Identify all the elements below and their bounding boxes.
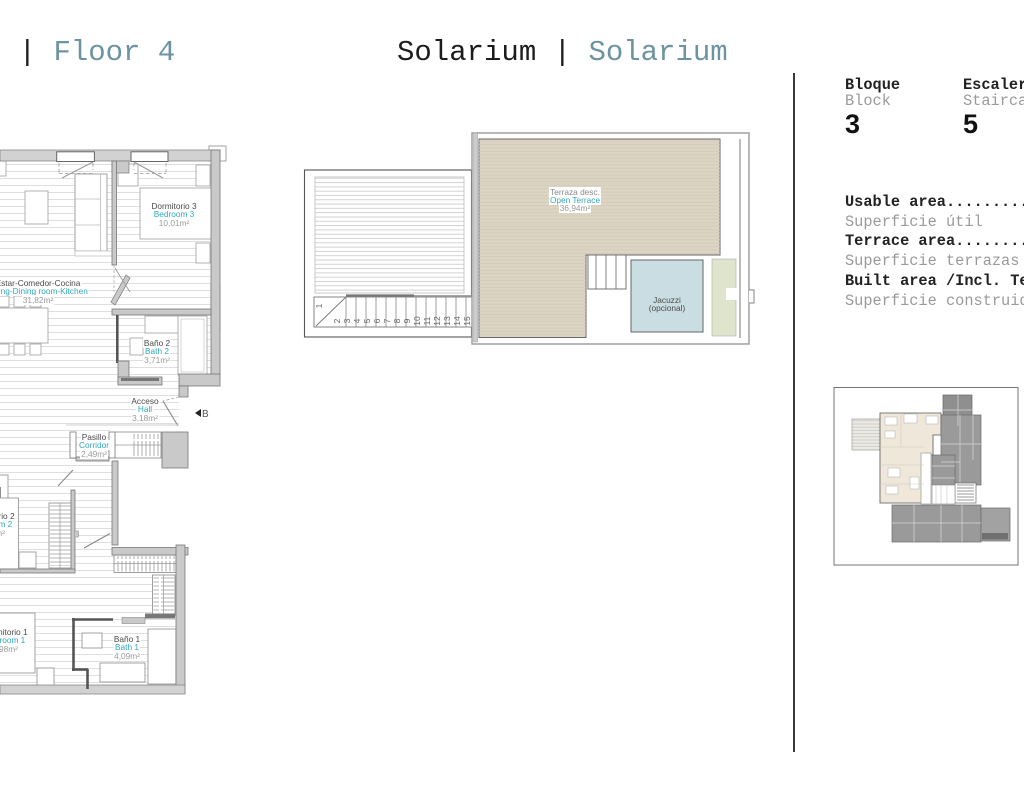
svg-text:7: 7 bbox=[382, 318, 392, 323]
svg-text:2: 2 bbox=[332, 318, 342, 323]
svg-text:1: 1 bbox=[314, 303, 324, 308]
svg-text:15: 15 bbox=[462, 316, 472, 326]
svg-text:6: 6 bbox=[372, 318, 382, 323]
svg-text:10: 10 bbox=[412, 316, 422, 326]
svg-text:3: 3 bbox=[342, 318, 352, 323]
svg-text:9: 9 bbox=[402, 318, 412, 323]
svg-text:4: 4 bbox=[352, 318, 362, 323]
svg-text:13: 13 bbox=[442, 316, 452, 326]
svg-text:8: 8 bbox=[392, 318, 402, 323]
svg-text:B: B bbox=[202, 409, 209, 420]
svg-text:12: 12 bbox=[432, 316, 442, 326]
svg-text:14: 14 bbox=[452, 316, 462, 326]
svg-text:11: 11 bbox=[422, 316, 432, 325]
svg-text:5: 5 bbox=[362, 318, 372, 323]
